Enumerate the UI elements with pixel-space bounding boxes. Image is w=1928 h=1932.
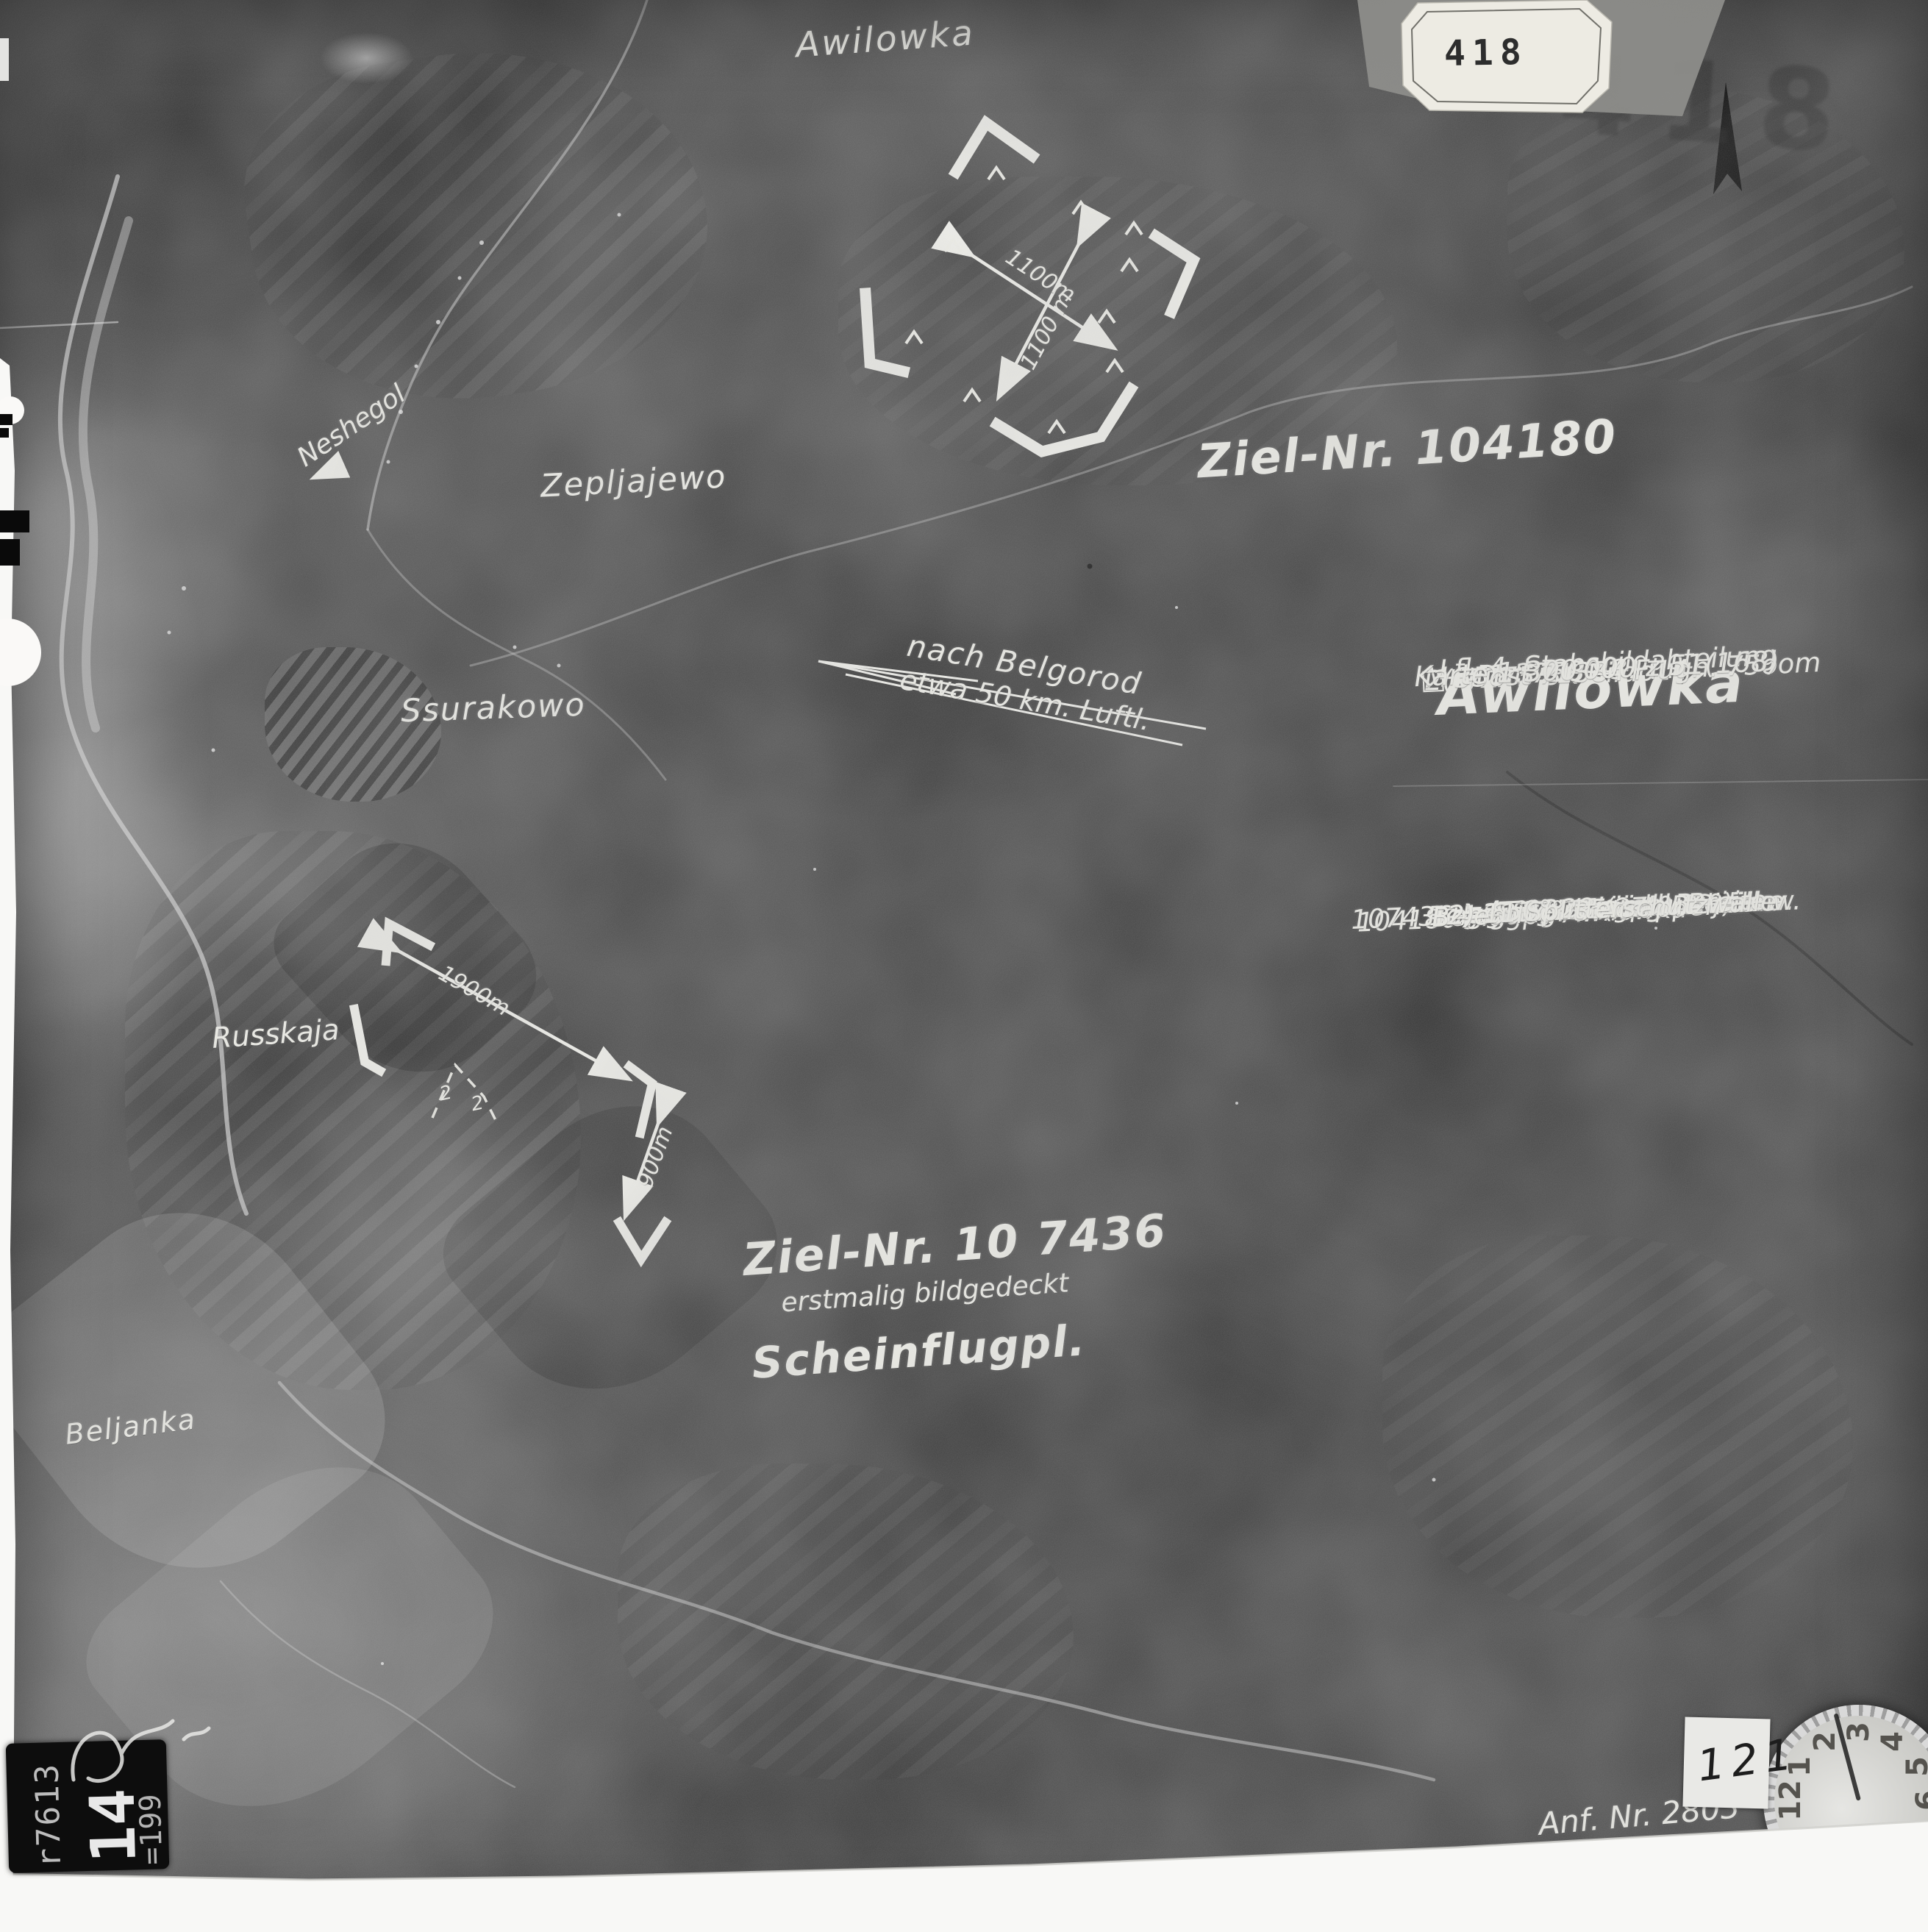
frame-number-sticker: 121: [1682, 1717, 1770, 1809]
aerial-photo: Awilowka Neshegol Zepljajewo Ssurakowo R…: [0, 0, 1928, 1932]
handwritten-scribble: [0, 0, 1928, 1932]
